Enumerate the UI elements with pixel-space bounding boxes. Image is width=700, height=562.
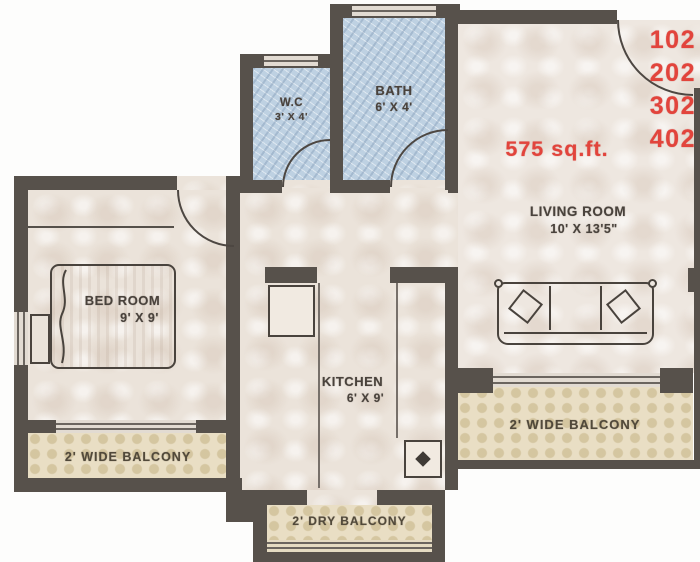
room-dimensions: 3' X 4' xyxy=(253,111,330,125)
sofa-seat-edge xyxy=(504,332,647,334)
room-name: KITCHEN xyxy=(300,374,405,391)
window-bar xyxy=(493,382,660,384)
wall-segment xyxy=(14,478,242,492)
stove-burner-icon xyxy=(415,451,431,467)
bedroom-door-patch xyxy=(177,176,233,190)
room-dimensions: 6' X 4' xyxy=(343,100,445,116)
wall-segment xyxy=(240,54,253,187)
bedroom-shelf-line xyxy=(28,226,174,228)
room-name: W.C xyxy=(253,96,330,111)
window-bar xyxy=(352,10,436,12)
bedside-table xyxy=(30,314,50,364)
window-bar xyxy=(267,542,432,544)
window-bar xyxy=(264,60,318,62)
wall-segment xyxy=(14,176,28,312)
room-dimensions: 10' X 13'5" xyxy=(493,221,663,237)
window xyxy=(56,420,196,433)
sofa-divider xyxy=(549,286,551,330)
wall-segment xyxy=(458,460,700,469)
wall-segment xyxy=(445,393,458,490)
sofa-cushion xyxy=(508,289,543,324)
wall-segment xyxy=(330,180,390,193)
unit-number: 302 xyxy=(626,90,696,123)
sofa-knob xyxy=(648,279,657,288)
window-bar xyxy=(267,547,432,549)
kitchen-platform xyxy=(268,285,315,337)
unit-numbers: 102 202 302 402 xyxy=(626,24,696,156)
living-room-label: LIVING ROOM 10' X 13'5" xyxy=(493,203,663,237)
wall-segment xyxy=(265,267,317,283)
room-dimensions: 9' X 9' xyxy=(60,310,185,326)
window-bar xyxy=(56,423,196,425)
window-bar xyxy=(493,376,660,378)
room-name: BED ROOM xyxy=(60,293,185,310)
window xyxy=(493,373,660,387)
kitchen-label: KITCHEN 6' X 9' xyxy=(300,374,405,406)
wall-segment xyxy=(267,490,307,505)
window-bar xyxy=(56,428,196,430)
wall-segment xyxy=(14,176,177,190)
kitchen-door-patch xyxy=(307,490,377,505)
wc-label: W.C 3' X 4' xyxy=(253,96,330,125)
wc-door-arc xyxy=(282,139,330,187)
room-name: LIVING ROOM xyxy=(493,203,663,221)
wall-segment xyxy=(445,368,493,393)
wall-segment xyxy=(240,180,282,193)
unit-number: 402 xyxy=(626,123,696,156)
sofa-cushion xyxy=(606,289,641,324)
window xyxy=(267,540,432,552)
room-dimensions: 6' X 9' xyxy=(300,391,405,407)
sofa-knob xyxy=(494,279,503,288)
wall-segment xyxy=(660,368,693,393)
unit-number: 102 xyxy=(626,24,696,57)
bedroom-label: BED ROOM 9' X 9' xyxy=(60,293,185,326)
sofa-divider xyxy=(600,286,602,330)
wall-segment xyxy=(688,268,700,292)
balcony-left-label: 2' WIDE BALCONY xyxy=(30,449,226,465)
window-bar xyxy=(23,312,25,365)
dry-balcony-label: 2' DRY BALCONY xyxy=(267,514,432,530)
unit-number: 202 xyxy=(626,57,696,90)
wall-segment xyxy=(14,420,56,433)
balcony-right-label: 2' WIDE BALCONY xyxy=(470,417,680,434)
room-name: BATH xyxy=(343,83,445,100)
stove xyxy=(404,440,442,478)
window-bar xyxy=(17,312,19,365)
wall-segment xyxy=(253,552,445,562)
sofa xyxy=(497,282,654,345)
area-label: 575 sq.ft. xyxy=(492,136,622,164)
window xyxy=(264,56,318,66)
kitchen-counter-line xyxy=(396,283,398,438)
window xyxy=(14,312,28,365)
wall-segment xyxy=(448,180,458,193)
bedroom-door-arc xyxy=(177,190,234,247)
bath-door-arc xyxy=(390,129,448,187)
bath-label: BATH 6' X 4' xyxy=(343,83,445,115)
floor-plan: W.C 3' X 4' BATH 6' X 4' LIVING ROOM 10'… xyxy=(0,0,700,562)
window xyxy=(352,6,436,16)
wall-segment xyxy=(330,4,343,187)
wall-segment xyxy=(445,10,617,24)
